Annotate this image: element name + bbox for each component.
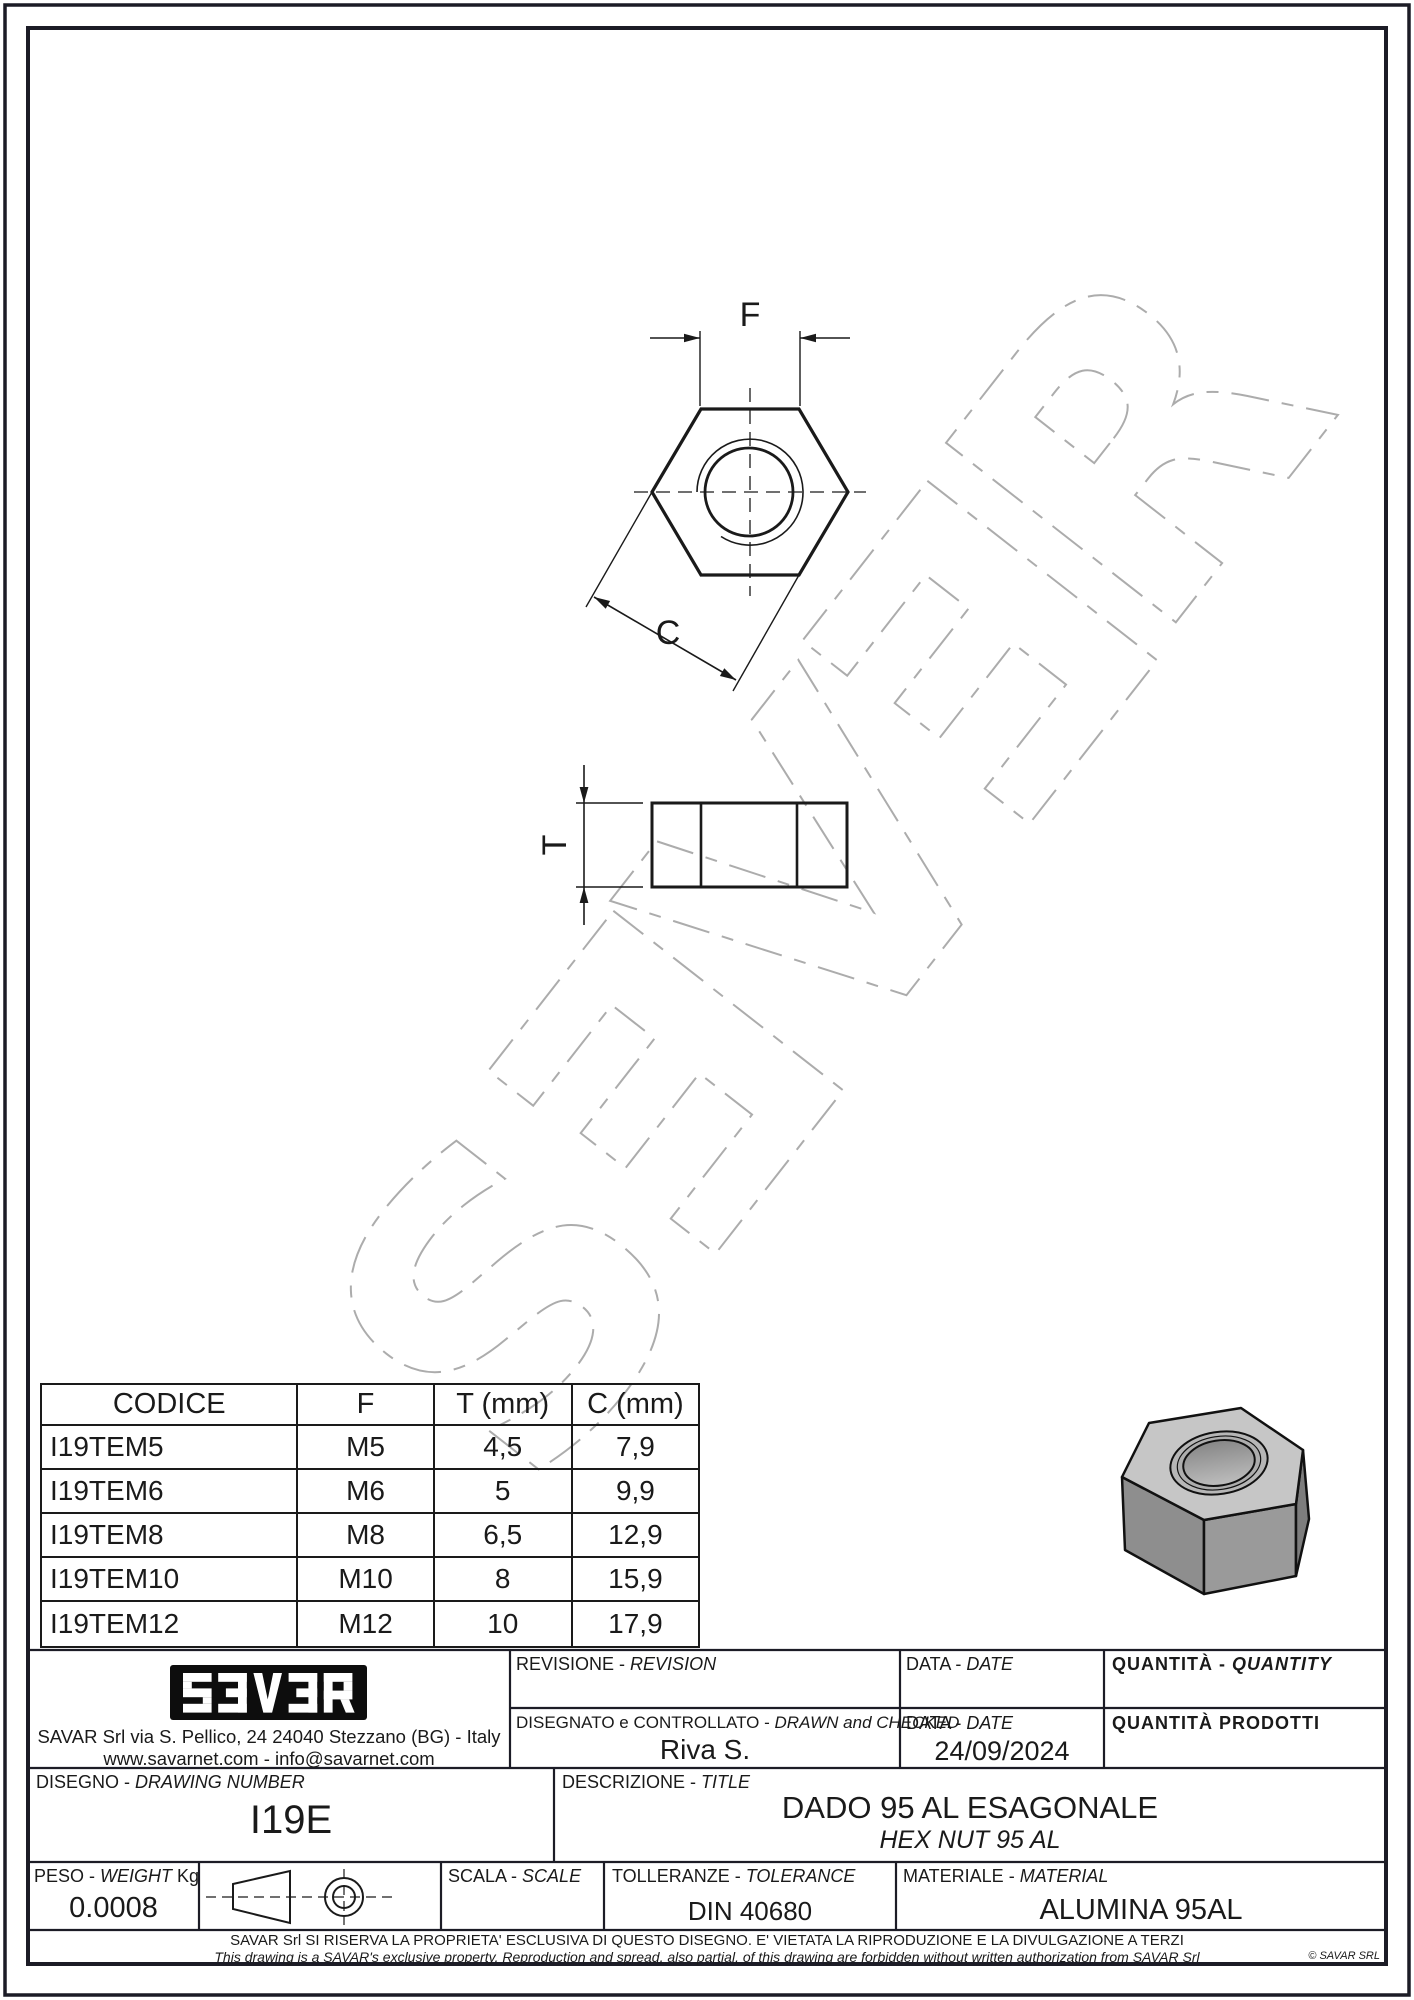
column-header-codice: CODICE [42,1385,298,1426]
date-top-label: DATA - DATE [906,1654,1013,1675]
cell-f: M12 [298,1602,434,1646]
drawing-sheet: { "watermark": { "letters": ["S", "Ǝ", "… [0,0,1414,2000]
cell-code: I19TEM10 [42,1558,298,1602]
description-value-it: DADO 95 AL ESAGONALE [554,1790,1386,1826]
quantity-label: QUANTITÀ - QUANTITY [1112,1654,1332,1675]
cell-c: 9,9 [573,1470,698,1514]
cell-code: I19TEM5 [42,1426,298,1470]
footer-disclaimer-it: SAVAR Srl SI RISERVA LA PROPRIETA' ESCLU… [28,1932,1386,1949]
table-row: I19TEM10 M10 8 15,9 [42,1558,698,1602]
table-row: I19TEM5 M5 4,5 7,9 [42,1426,698,1470]
table-header-row: CODICE F T (mm) C (mm) [42,1385,698,1426]
table-row: I19TEM8 M8 6,5 12,9 [42,1514,698,1558]
cell-t: 5 [435,1470,573,1514]
table-row: I19TEM6 M6 5 9,9 [42,1470,698,1514]
date-value: 24/09/2024 [900,1736,1104,1767]
drawn-checked-value: Riva S. [510,1734,900,1766]
cell-code: I19TEM12 [42,1602,298,1646]
drawing-canvas: S Ǝ V Ǝ R F C [0,0,1414,2000]
cell-c: 15,9 [573,1558,698,1602]
weight-label: PESO - WEIGHT Kg [34,1866,199,1887]
cell-f: M8 [298,1514,434,1558]
savar-watermark: S Ǝ V Ǝ R [240,181,1414,1562]
quantity-produced-label: QUANTITÀ PRODOTTI [1112,1713,1320,1734]
drawn-checked-label: DISEGNATO e CONTROLLATO - DRAWN and CHEC… [516,1713,959,1733]
scale-label: SCALA - SCALE [448,1866,581,1887]
arrowhead [594,597,610,609]
date-label: DATA - DATE [906,1713,1013,1734]
cell-t: 8 [435,1558,573,1602]
tolerance-value: DIN 40680 [604,1896,896,1927]
column-header-c: C (mm) [573,1385,698,1426]
cell-t: 6,5 [435,1514,573,1558]
column-header-f: F [298,1385,434,1426]
cell-c: 12,9 [573,1514,698,1558]
cell-t: 10 [435,1602,573,1646]
table-row: I19TEM12 M12 10 17,9 [42,1602,698,1646]
footer-copyright: © SAVAR SRL [1270,1950,1380,1962]
cell-c: 7,9 [573,1426,698,1470]
cell-t: 4,5 [435,1426,573,1470]
drawing-number-label: DISEGNO - DRAWING NUMBER [36,1772,305,1793]
logo-letter-S [183,1673,212,1713]
arrowhead [580,787,589,803]
dim-label-F: F [740,296,761,334]
cell-f: M10 [298,1558,434,1602]
arrowhead [684,334,700,343]
cell-c: 17,9 [573,1602,698,1646]
material-value: ALUMINA 95AL [896,1894,1386,1927]
savar-logo [170,1665,367,1720]
company-web-email: www.savarnet.com - info@savarnet.com [28,1748,510,1770]
cell-code: I19TEM8 [42,1514,298,1558]
cell-code: I19TEM6 [42,1470,298,1514]
cell-f: M6 [298,1470,434,1514]
hex-nut-3d-render [1122,1408,1309,1594]
dim-label-C: C [656,614,681,652]
dim-label-T: T [536,835,574,856]
column-header-t: T (mm) [435,1385,573,1426]
tolerance-label: TOLLERANZE - TOLERANCE [612,1866,855,1887]
drawing-number-value: I19E [28,1798,554,1843]
cell-f: M5 [298,1426,434,1470]
revision-label: REVISIONE - REVISION [516,1654,716,1675]
arrowhead [800,334,816,343]
footer-disclaimer-en: This drawing is a SAVAR's exclusive prop… [28,1949,1386,1965]
material-label: MATERIALE - MATERIAL [903,1866,1108,1887]
company-address: SAVAR Srl via S. Pellico, 24 24040 Stezz… [28,1726,510,1748]
weight-value: 0.0008 [28,1892,199,1925]
projection-symbol [206,1869,398,1925]
dimension-table: CODICE F T (mm) C (mm) I19TEM5 M5 4,5 7,… [40,1383,700,1648]
description-value-en: HEX NUT 95 AL [554,1826,1386,1855]
